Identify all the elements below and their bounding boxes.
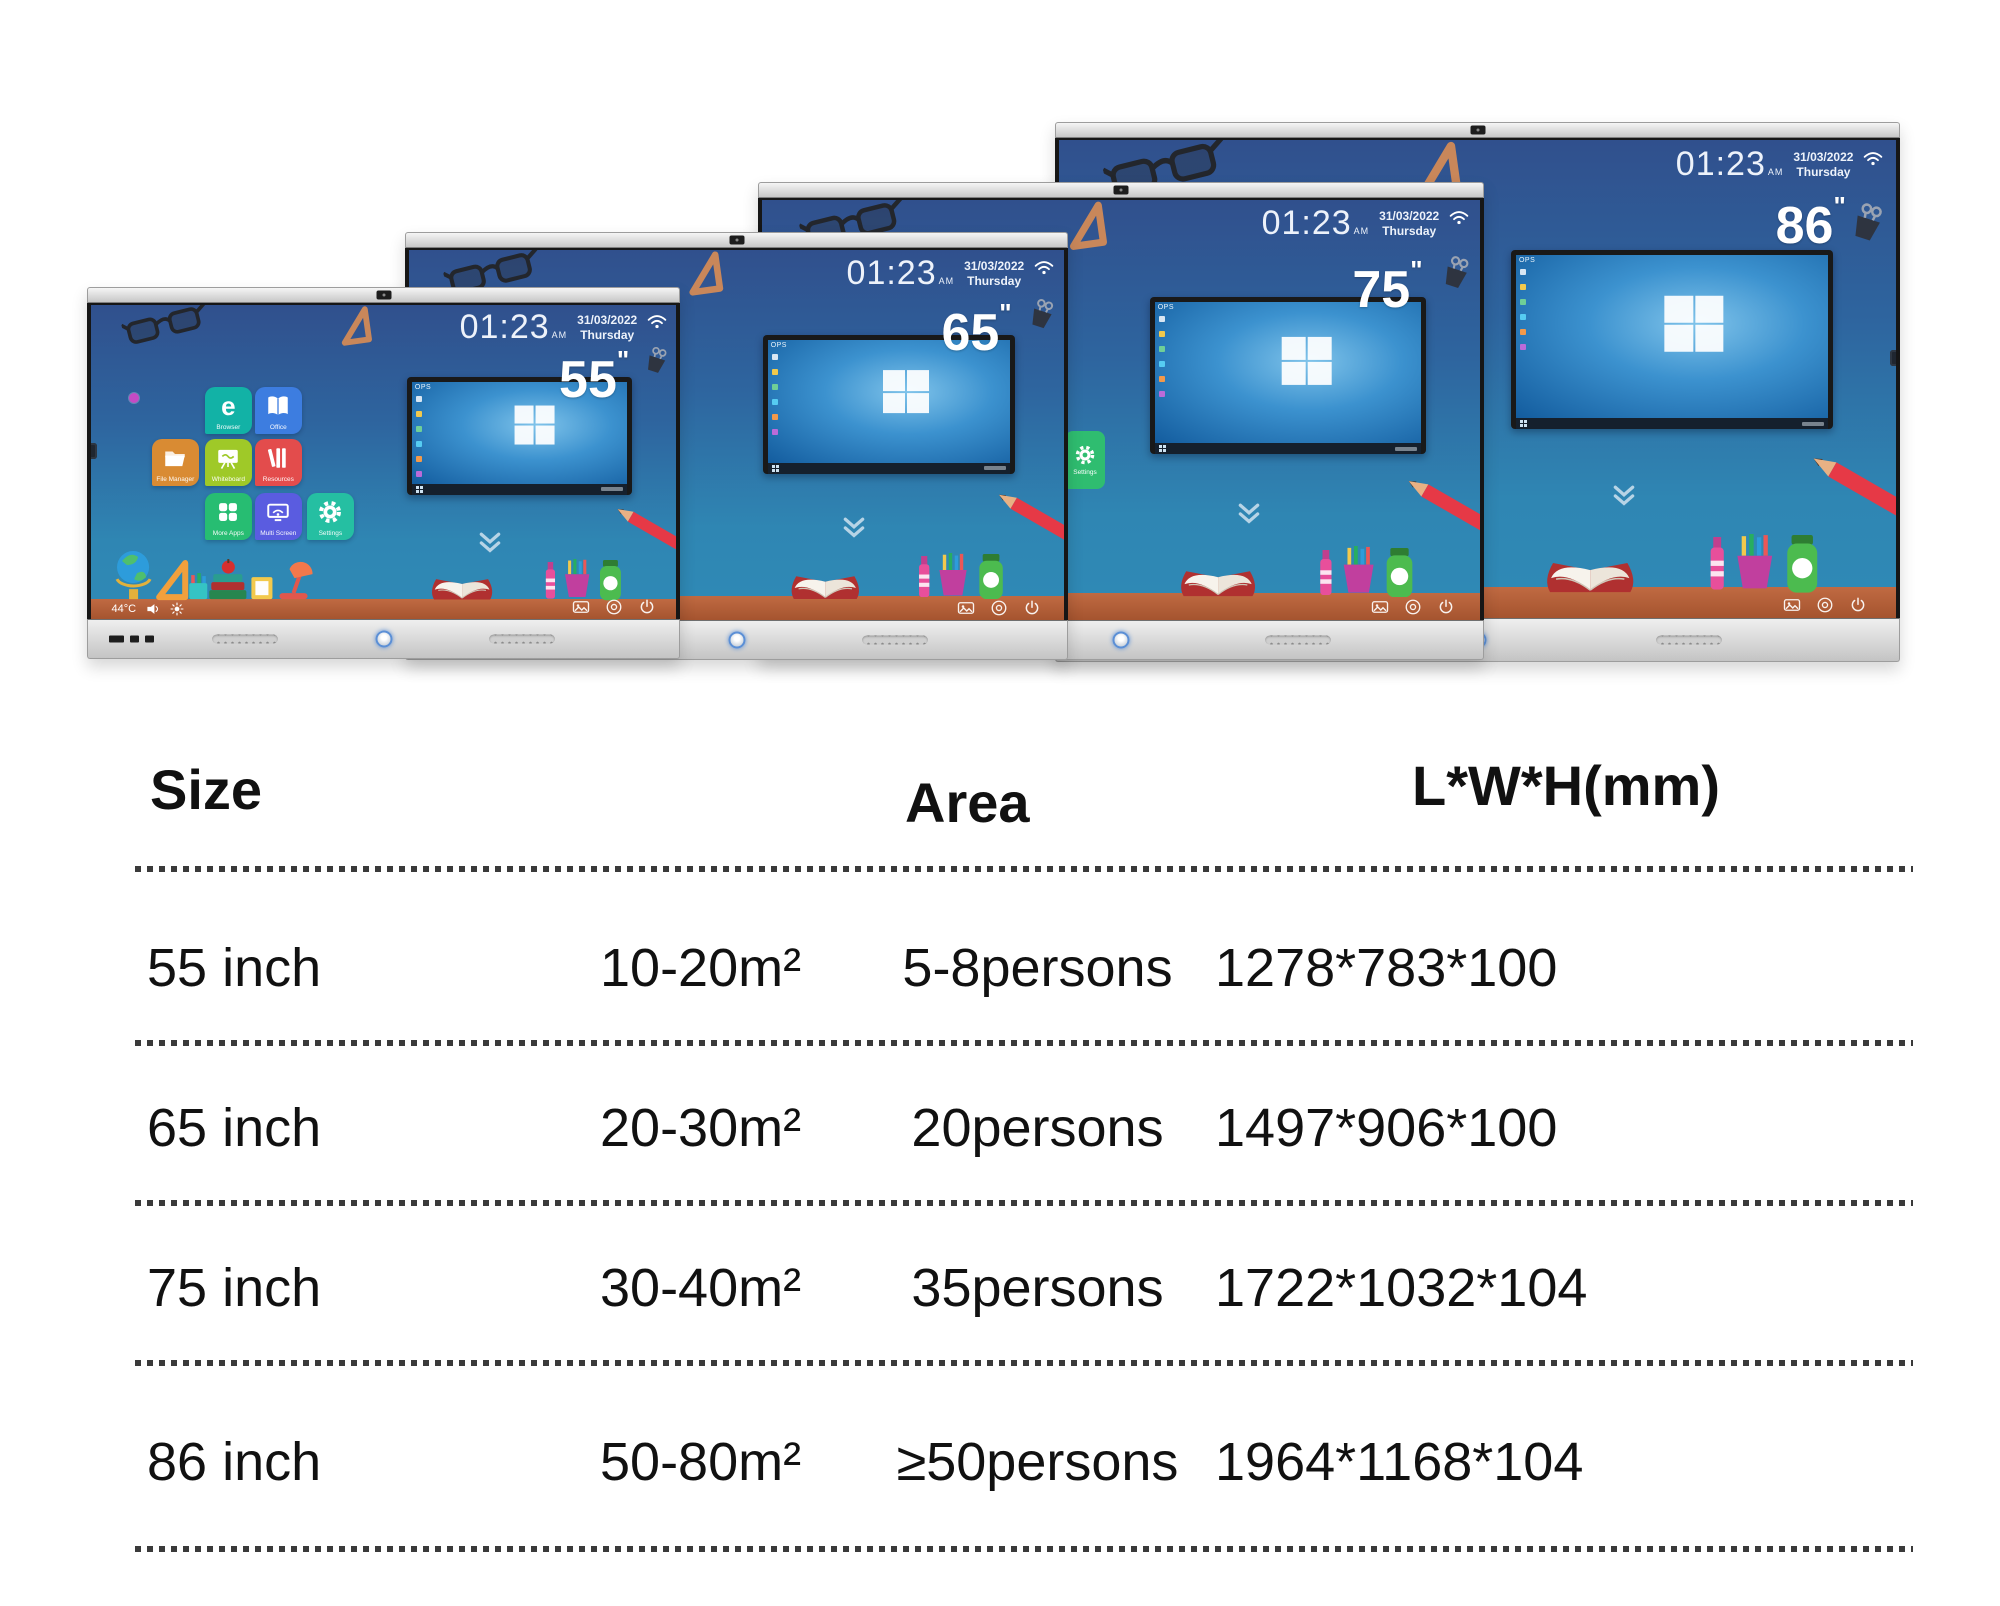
clock: 01:23AM 31/03/2022Thursday [1262, 206, 1470, 240]
dot-decoration [129, 393, 139, 403]
cell-persons: ≥50persons [870, 1435, 1205, 1489]
date: 31/03/2022 [577, 313, 637, 328]
cell-persons: 35persons [870, 1261, 1205, 1315]
start-icon [772, 465, 779, 472]
clock-time: 01:23 [460, 308, 550, 346]
start-icon [1520, 420, 1527, 427]
bottle-decoration [917, 556, 931, 602]
pencil-decoration [1404, 473, 1484, 545]
app-tile-whiteboard[interactable]: Whiteboard [205, 439, 252, 486]
table-divider [135, 866, 1913, 872]
binder-clip-decoration [639, 343, 672, 383]
windows-taskbar [1155, 443, 1421, 454]
weekday: Thursday [1379, 224, 1439, 239]
speaker-grille [1656, 636, 1722, 645]
speaker-grille [1265, 636, 1331, 645]
size-label-75: 75" [1352, 257, 1422, 316]
top-bezel [87, 287, 680, 303]
open-book-decoration [1175, 560, 1261, 605]
ops-badge: OPS [1158, 304, 1174, 311]
column-header-area: Area [905, 775, 1030, 831]
app-tile-multi-screen[interactable]: Multi Screen [255, 493, 302, 540]
screen-toolbar [957, 599, 1041, 617]
camera-icon [1470, 126, 1485, 135]
record-icon[interactable] [605, 598, 623, 616]
screenshot-icon[interactable] [957, 599, 975, 617]
gear-icon [307, 497, 354, 527]
brightness-icon[interactable] [170, 602, 184, 616]
cell-persons: 5-8persons [870, 941, 1205, 995]
books-icon [255, 443, 302, 473]
desktop-icons [772, 354, 778, 435]
pencil-decoration [1808, 449, 1900, 533]
cell-area: 10-20m² [600, 941, 870, 995]
date: 31/03/2022 [1793, 150, 1853, 165]
chevron-down-icon[interactable] [841, 516, 867, 545]
ops-badge: OPS [771, 342, 787, 349]
camera-icon [376, 291, 391, 300]
wifi-icon [1449, 210, 1469, 230]
table-divider [135, 1040, 1913, 1046]
windows-taskbar [412, 484, 627, 495]
size-label-55: 55" [559, 347, 629, 406]
chevron-down-icon[interactable] [1611, 484, 1637, 513]
triangle-ruler-decoration [681, 248, 727, 305]
speaker-grille [862, 636, 928, 645]
table-divider [135, 1200, 1913, 1206]
table-divider [135, 1546, 1913, 1552]
jar-decoration [1383, 548, 1416, 603]
desktop-icons [1520, 269, 1526, 350]
power-icon[interactable] [1023, 599, 1041, 617]
bottle-decoration [1318, 550, 1334, 600]
screenshot-icon[interactable] [1371, 598, 1389, 616]
size-label-65: 65" [941, 300, 1011, 359]
top-bezel [758, 182, 1484, 198]
app-tile-settings[interactable]: Settings [307, 493, 354, 540]
app-tile-browser[interactable]: e Browser [205, 387, 252, 434]
clock-meridiem: AM [1768, 167, 1784, 177]
windows-taskbar [1516, 418, 1828, 429]
speaker-grille [212, 635, 278, 644]
pencil-decoration [614, 502, 680, 561]
cell-size: 65 inch [135, 1101, 600, 1155]
pencil-decoration [995, 487, 1068, 553]
binder-clip-decoration [1435, 251, 1475, 299]
top-bezel [405, 232, 1068, 248]
cast-icon [255, 497, 302, 527]
chevron-down-icon[interactable] [477, 531, 503, 560]
windows-wallpaper: OPS [1516, 255, 1828, 418]
start-icon [416, 486, 423, 493]
screen-toolbar [1783, 596, 1867, 614]
record-icon[interactable] [1816, 596, 1834, 614]
open-book-decoration [786, 566, 865, 607]
windows-logo [1281, 337, 1332, 385]
table-row: 65 inch 20-30m² 20persons 1497*906*100 [135, 1088, 1913, 1168]
cell-area: 30-40m² [600, 1261, 870, 1315]
temperature-readout: 44°C [111, 603, 136, 615]
jar-decoration [976, 554, 1006, 604]
size-label-86: 86" [1776, 193, 1846, 252]
clock: 01:23AM 31/03/2022Thursday [460, 310, 668, 344]
ops-badge: OPS [415, 384, 431, 391]
open-book-decoration [427, 570, 497, 607]
side-button[interactable] [1890, 350, 1900, 366]
column-header-size: Size [150, 762, 262, 818]
open-book-decoration [1540, 550, 1640, 601]
start-icon [1159, 445, 1166, 452]
pencil-cup-decoration [1340, 546, 1377, 600]
system-tray [984, 466, 1006, 470]
cell-lwh: 1278*783*100 [1205, 941, 1913, 995]
settings-tab-label: Settings [1073, 469, 1097, 476]
date: 31/03/2022 [964, 259, 1024, 274]
clock-meridiem: AM [1354, 226, 1370, 236]
home-button[interactable] [1113, 632, 1130, 649]
clock-meridiem: AM [939, 276, 955, 286]
speaker-grille [489, 635, 555, 644]
system-tray [601, 487, 623, 491]
date: 31/03/2022 [1379, 209, 1439, 224]
jar-decoration [1783, 535, 1822, 598]
wifi-icon [647, 314, 667, 334]
whiteboard-icon [205, 443, 252, 473]
system-tray [1395, 447, 1417, 451]
bottom-bezel [87, 619, 680, 659]
desktop-icons [1159, 316, 1165, 397]
clock: 01:23AM 31/03/2022Thursday [847, 256, 1055, 290]
cell-lwh: 1497*906*100 [1205, 1101, 1913, 1155]
cell-size: 75 inch [135, 1261, 600, 1315]
home-button[interactable] [375, 631, 392, 648]
windows-wallpaper: OPS [1155, 302, 1421, 444]
clock-meridiem: AM [552, 330, 568, 340]
settings-tab[interactable]: Settings [1065, 431, 1105, 489]
weekday: Thursday [1793, 165, 1853, 180]
windows-desktop-window[interactable]: OPS [1150, 297, 1426, 455]
table-row: 55 inch 10-20m² 5-8persons 1278*783*100 [135, 928, 1913, 1008]
glasses-decoration [120, 303, 214, 355]
cell-size: 55 inch [135, 941, 600, 995]
ops-badge: OPS [1519, 257, 1535, 264]
screenshot-icon[interactable] [572, 598, 590, 616]
windows-desktop-window[interactable]: OPS [1511, 250, 1833, 429]
cell-lwh: 1722*1032*104 [1205, 1261, 1913, 1315]
desk-items-decoration [111, 539, 322, 606]
binder-clip-decoration [1023, 295, 1060, 339]
office-icon [255, 391, 302, 421]
app-tile-resources[interactable]: Resources [255, 439, 302, 486]
panel-55-inch: 01:23AM 31/03/2022Thursday 55" e Browser… [87, 287, 680, 659]
weekday: Thursday [577, 328, 637, 343]
record-icon[interactable] [1404, 598, 1422, 616]
weekday: Thursday [964, 274, 1024, 289]
power-icon[interactable] [1849, 596, 1867, 614]
chevron-down-icon[interactable] [1236, 502, 1262, 531]
clock-time: 01:23 [1262, 204, 1352, 242]
system-tray [1802, 422, 1824, 426]
power-icon[interactable] [638, 598, 656, 616]
app-tile-more-apps[interactable]: More Apps [205, 493, 252, 540]
screen-toolbar [1371, 598, 1455, 616]
windows-taskbar [768, 463, 1010, 474]
record-icon[interactable] [990, 599, 1008, 617]
screenshot-icon[interactable] [1783, 596, 1801, 614]
screen-toolbar [572, 598, 656, 616]
cell-lwh: 1964*1168*104 [1205, 1435, 1913, 1489]
cell-persons: 20persons [870, 1101, 1205, 1155]
cell-area: 50-80m² [600, 1435, 870, 1489]
grid-icon [205, 497, 252, 527]
app-tile-office[interactable]: Office [255, 387, 302, 434]
volume-icon[interactable] [146, 602, 160, 616]
clock-time: 01:23 [847, 254, 937, 292]
app-launcher-grid: e Browser Office File Manager Whiteboard [152, 387, 362, 547]
screen-55: 01:23AM 31/03/2022Thursday 55" e Browser… [87, 303, 680, 619]
camera-icon [1114, 186, 1129, 195]
wifi-icon [1863, 151, 1883, 171]
windows-logo [514, 405, 555, 444]
product-sheet: 01:23AM 31/03/2022Thursday 86" OPS [0, 0, 2000, 1606]
clock-time: 01:23 [1676, 145, 1766, 183]
top-bezel [1055, 122, 1900, 138]
desktop-icons [416, 396, 422, 477]
binder-clip-decoration [1844, 198, 1890, 253]
bottle-decoration [544, 562, 557, 604]
table-divider [135, 1360, 1913, 1366]
windows-logo [883, 370, 929, 414]
bottle-decoration [1708, 537, 1726, 595]
power-icon[interactable] [1437, 598, 1455, 616]
table-row: 75 inch 30-40m² 35persons 1722*1032*104 [135, 1248, 1913, 1328]
column-header-lwh: L*W*H(mm) [1412, 758, 1720, 814]
windows-logo [1664, 295, 1723, 351]
wifi-icon [1034, 260, 1054, 280]
clock: 01:23AM 31/03/2022Thursday [1676, 147, 1884, 181]
cell-area: 20-30m² [600, 1101, 870, 1155]
status-bar: 44°C [111, 602, 184, 616]
home-button[interactable] [728, 632, 745, 649]
side-button[interactable] [87, 443, 97, 459]
triangle-ruler-decoration [334, 303, 375, 354]
table-row: 86 inch 50-80m² ≥50persons 1964*1168*104 [135, 1422, 1913, 1502]
pencil-cup-decoration [936, 553, 970, 602]
io-ports [109, 636, 154, 643]
folder-icon [152, 443, 199, 473]
cell-size: 86 inch [135, 1435, 600, 1489]
app-tile-file-manager[interactable]: File Manager [152, 439, 199, 486]
pencil-cup-decoration [1733, 534, 1777, 596]
camera-icon [729, 236, 744, 245]
